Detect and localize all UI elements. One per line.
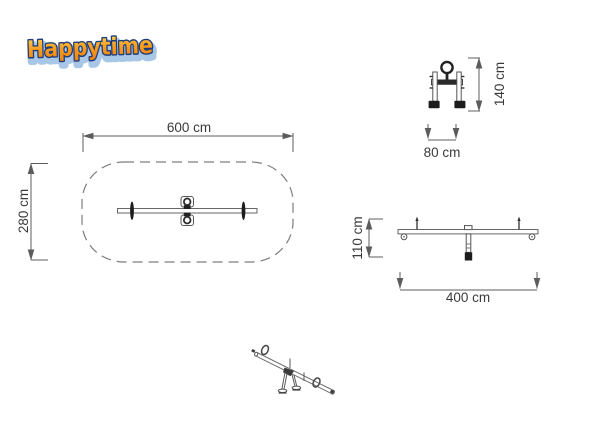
side-beam xyxy=(398,230,538,234)
plan-beam xyxy=(118,209,258,214)
side-view xyxy=(369,217,538,291)
dim-280 xyxy=(31,164,48,261)
side-seat-right xyxy=(529,234,535,240)
dim-label-140cm: 140 cm xyxy=(492,52,508,116)
dim-label-600cm: 600 cm xyxy=(157,120,221,136)
front-handle-stem xyxy=(446,74,449,81)
dim-140 xyxy=(468,58,480,111)
top-view xyxy=(31,133,293,262)
dim-label-400cm: 400 cm xyxy=(436,290,500,306)
drawing-sheet: Happytime Happytime xyxy=(0,0,600,424)
front-handle-ring xyxy=(441,62,452,73)
plan-handle-right xyxy=(242,202,246,220)
iso-ring-left xyxy=(260,344,270,355)
technical-drawing xyxy=(0,0,600,424)
dim-label-110cm: 110 cm xyxy=(350,206,366,270)
dim-400 xyxy=(400,272,537,290)
front-leg-left xyxy=(433,72,437,102)
side-handle-right xyxy=(517,217,520,230)
dim-110 xyxy=(369,219,383,257)
side-handle-left xyxy=(415,217,418,230)
plan-handle-left xyxy=(130,202,134,220)
side-seat-left xyxy=(401,234,407,240)
perspective-view xyxy=(251,344,335,394)
dim-80 xyxy=(428,124,456,140)
front-axle xyxy=(435,80,460,85)
iso-base-plates xyxy=(278,386,300,393)
front-leg-right xyxy=(457,72,461,102)
dim-label-280cm: 280 cm xyxy=(16,179,32,243)
iso-beam-top xyxy=(257,353,334,391)
front-foot-left xyxy=(429,101,440,108)
front-view xyxy=(428,58,480,140)
front-foot-right xyxy=(454,101,465,108)
dim-label-80cm: 80 cm xyxy=(410,145,474,161)
